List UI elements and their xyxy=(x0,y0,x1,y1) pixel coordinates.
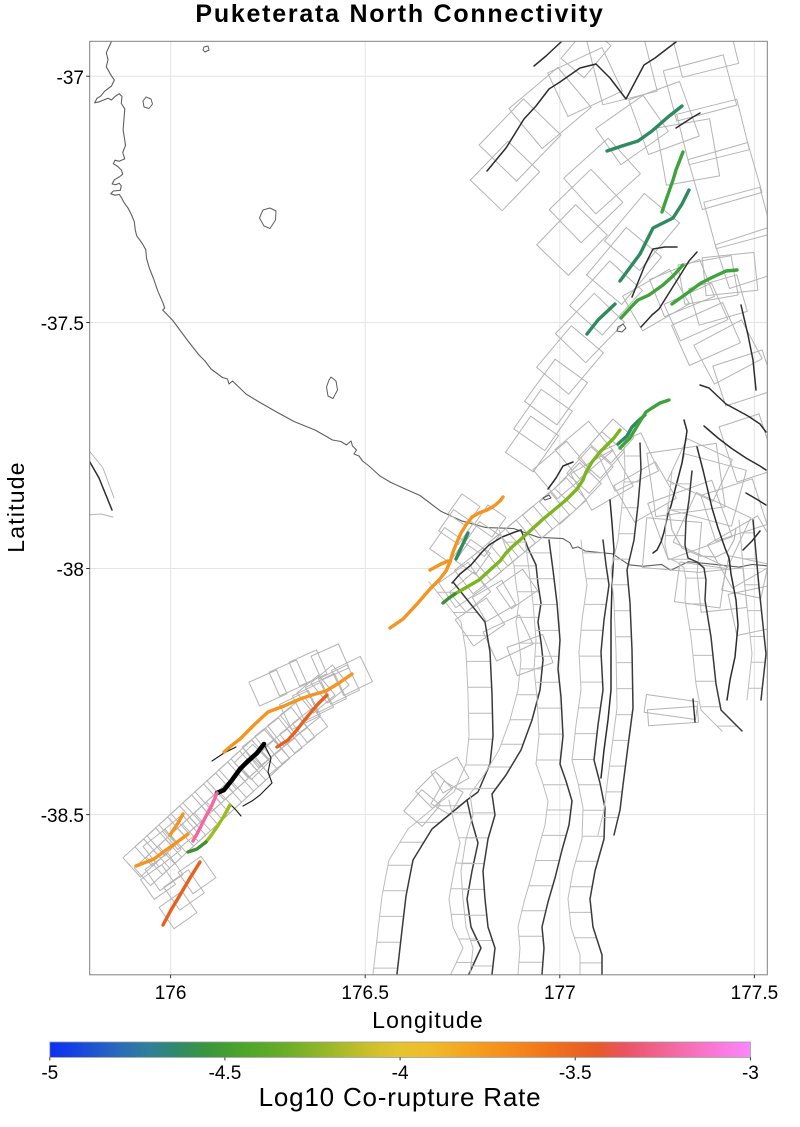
svg-text:Log10 Co-rupture Rate: Log10 Co-rupture Rate xyxy=(259,1082,542,1112)
svg-text:176: 176 xyxy=(155,983,187,1004)
svg-text:-5: -5 xyxy=(41,1063,58,1084)
svg-text:-4: -4 xyxy=(392,1063,409,1084)
svg-text:176.5: 176.5 xyxy=(341,983,389,1004)
svg-text:-37: -37 xyxy=(57,68,84,89)
svg-text:Longitude: Longitude xyxy=(372,1007,484,1033)
svg-text:Puketerata North Connectivity: Puketerata North Connectivity xyxy=(195,0,604,28)
svg-text:-4.5: -4.5 xyxy=(209,1063,242,1084)
svg-text:177: 177 xyxy=(544,983,576,1004)
svg-text:177.5: 177.5 xyxy=(731,983,779,1004)
svg-text:-3: -3 xyxy=(742,1063,759,1084)
svg-text:-37.5: -37.5 xyxy=(41,314,84,335)
svg-text:-3.5: -3.5 xyxy=(559,1063,592,1084)
svg-text:-38: -38 xyxy=(57,560,84,581)
svg-text:Latitude: Latitude xyxy=(3,461,29,552)
svg-text:-38.5: -38.5 xyxy=(41,806,84,827)
